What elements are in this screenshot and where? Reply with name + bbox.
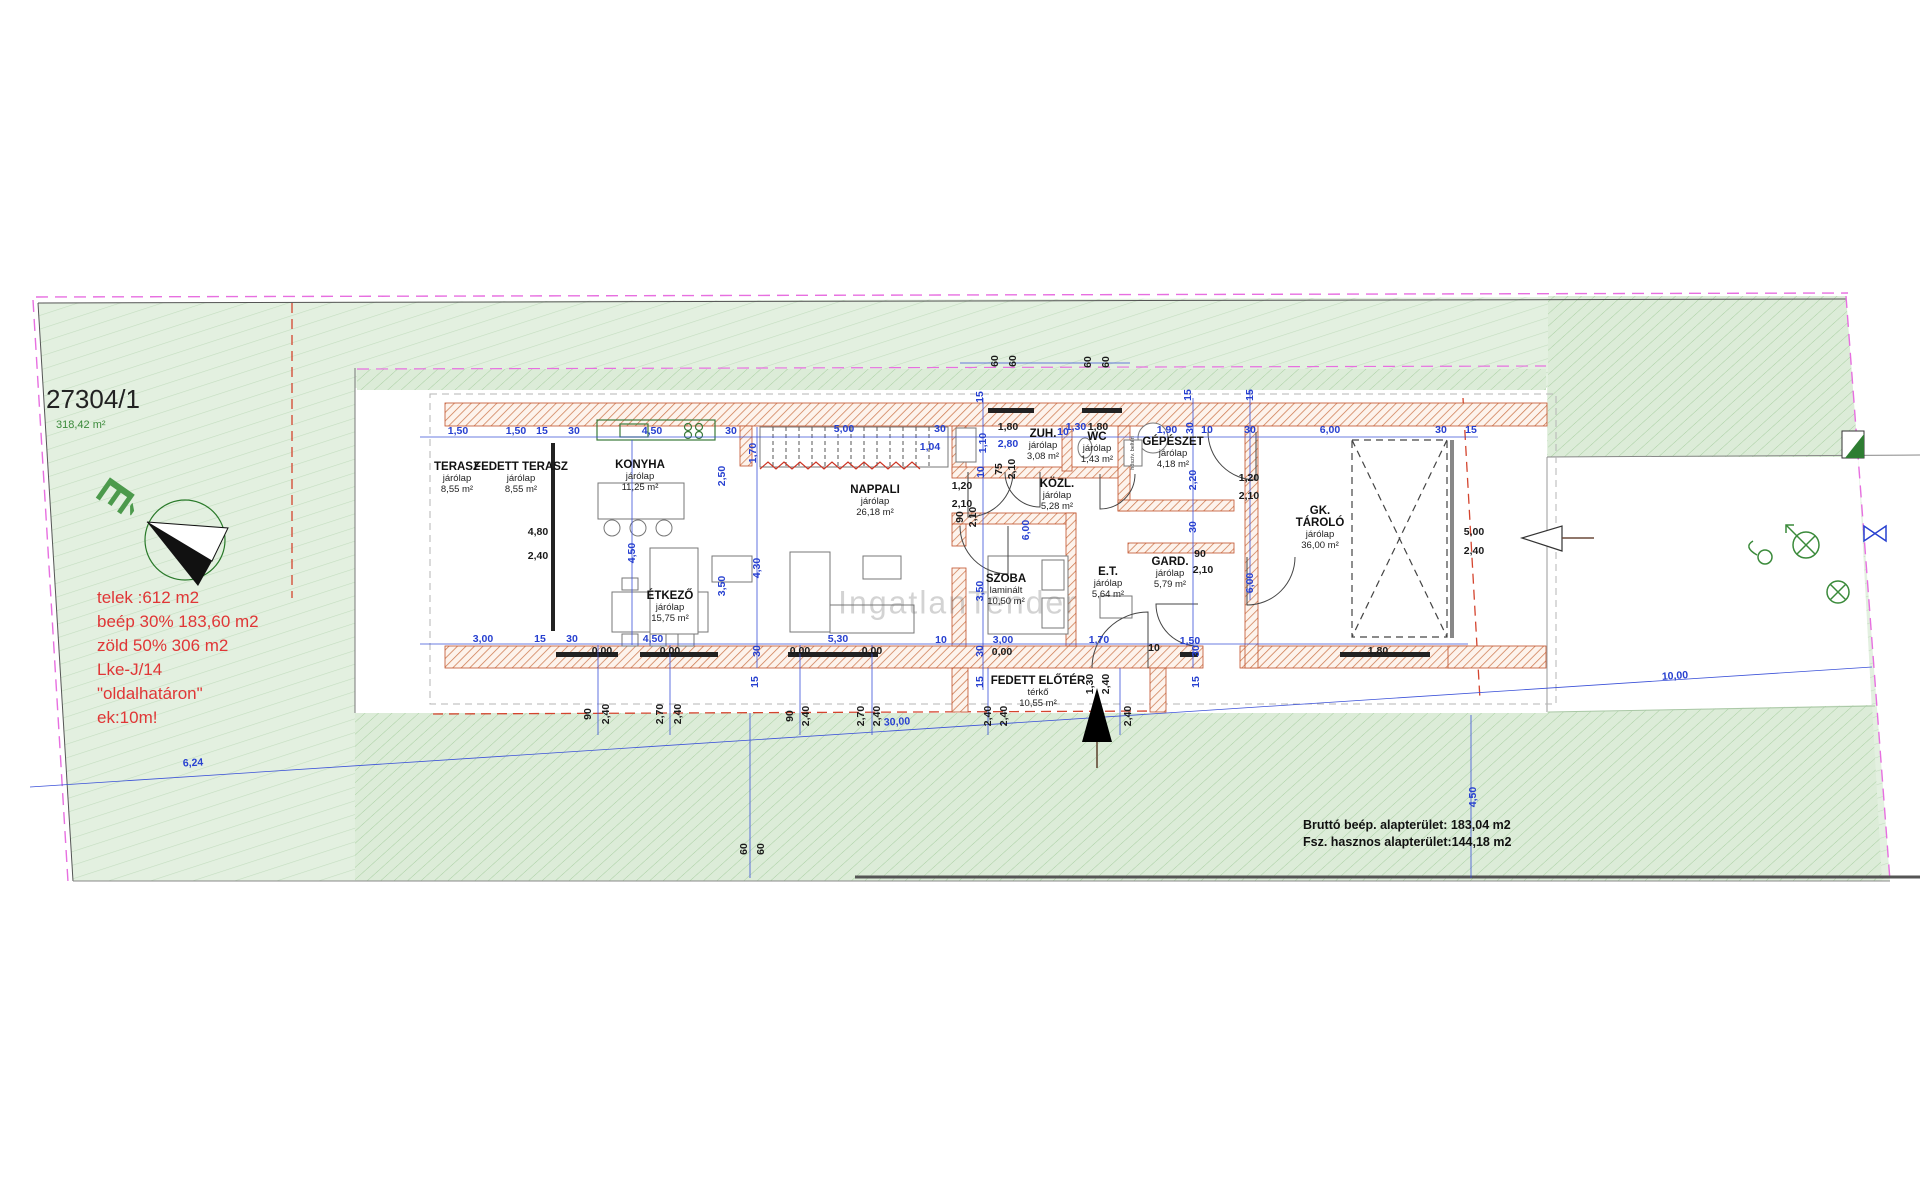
valve-icon [1864, 526, 1886, 541]
site-plan-page: 27304/1 318,42 m² É telek :612 m2beép 30… [0, 0, 1920, 1199]
site-plan-drawing [0, 0, 1920, 1199]
parcel-corner-marker-icon [1842, 431, 1864, 458]
